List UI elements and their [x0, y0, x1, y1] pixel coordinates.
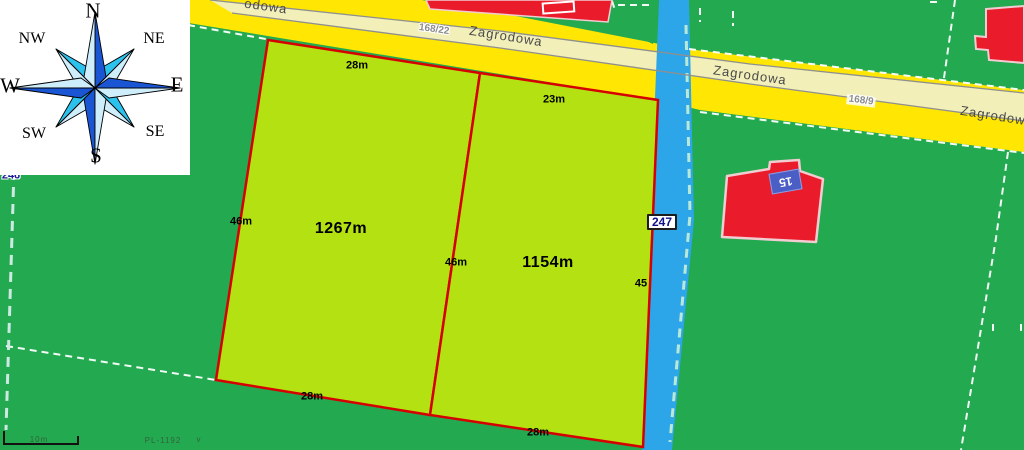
- watermark-mark: v: [197, 436, 202, 444]
- dim-parcel1-top: 28m: [346, 61, 368, 72]
- house-number-text: 15: [778, 173, 794, 189]
- compass-label-w: W: [0, 74, 20, 99]
- dim-parcel1-right: 46m: [445, 258, 467, 269]
- compass-label-e: E: [171, 73, 184, 98]
- dim-parcel2-bottom: 28m: [527, 428, 549, 439]
- compass-label-se: SE: [146, 123, 165, 141]
- area-label-parcel1: 1267m: [315, 221, 367, 237]
- area-label-parcel2: 1154m: [522, 255, 573, 271]
- compass-rose: N NE E SE S SW W NW: [0, 0, 190, 175]
- watermark-text: PL-1192: [145, 437, 182, 445]
- map-viewport: odowa 168/22 Zagrodowa Zagrodowa 168/9 Z…: [0, 0, 1024, 450]
- compass-label-ne: NE: [143, 30, 164, 48]
- compass-label-n: N: [85, 0, 100, 24]
- scale-bar-label: 10m: [30, 436, 49, 444]
- compass-label-s: S: [90, 144, 102, 169]
- dim-parcel2-top: 23m: [543, 95, 565, 106]
- waterway-number-badge: 247: [647, 214, 677, 230]
- compass-label-nw: NW: [19, 30, 46, 48]
- compass-label-sw: SW: [22, 125, 46, 143]
- dim-parcel1-left: 46m: [230, 217, 252, 228]
- dim-parcel1-bottom: 28m: [301, 392, 323, 403]
- dim-parcel2-right: 45: [635, 279, 647, 290]
